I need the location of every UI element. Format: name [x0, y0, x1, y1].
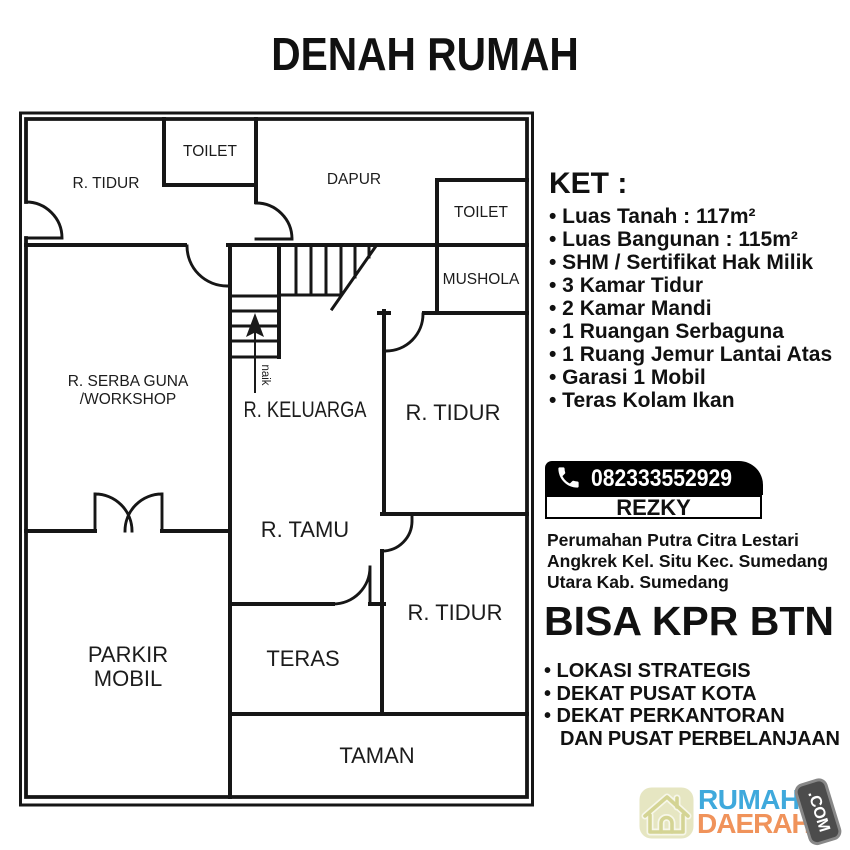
svg-text:R. KELUARGA: R. KELUARGA	[244, 397, 367, 422]
svg-text:DAPUR: DAPUR	[327, 171, 381, 188]
svg-text:TERAS: TERAS	[266, 646, 339, 671]
svg-text:/WORKSHOP: /WORKSHOP	[80, 391, 176, 408]
svg-text:PARKIR: PARKIR	[88, 642, 168, 667]
svg-text:TAMAN: TAMAN	[339, 743, 414, 768]
svg-text:TOILET: TOILET	[454, 204, 509, 221]
svg-text:R. TAMU: R. TAMU	[261, 517, 349, 542]
svg-text:R. TIDUR: R. TIDUR	[408, 600, 503, 625]
svg-text:R. TIDUR: R. TIDUR	[406, 400, 501, 425]
svg-text:R. SERBA GUNA: R. SERBA GUNA	[68, 373, 189, 390]
svg-text:R. TIDUR: R. TIDUR	[73, 175, 140, 192]
svg-text:TOILET: TOILET	[183, 143, 238, 160]
svg-text:naik: naik	[259, 364, 271, 385]
svg-text:MOBIL: MOBIL	[94, 666, 162, 691]
svg-text:MUSHOLA: MUSHOLA	[443, 271, 520, 288]
